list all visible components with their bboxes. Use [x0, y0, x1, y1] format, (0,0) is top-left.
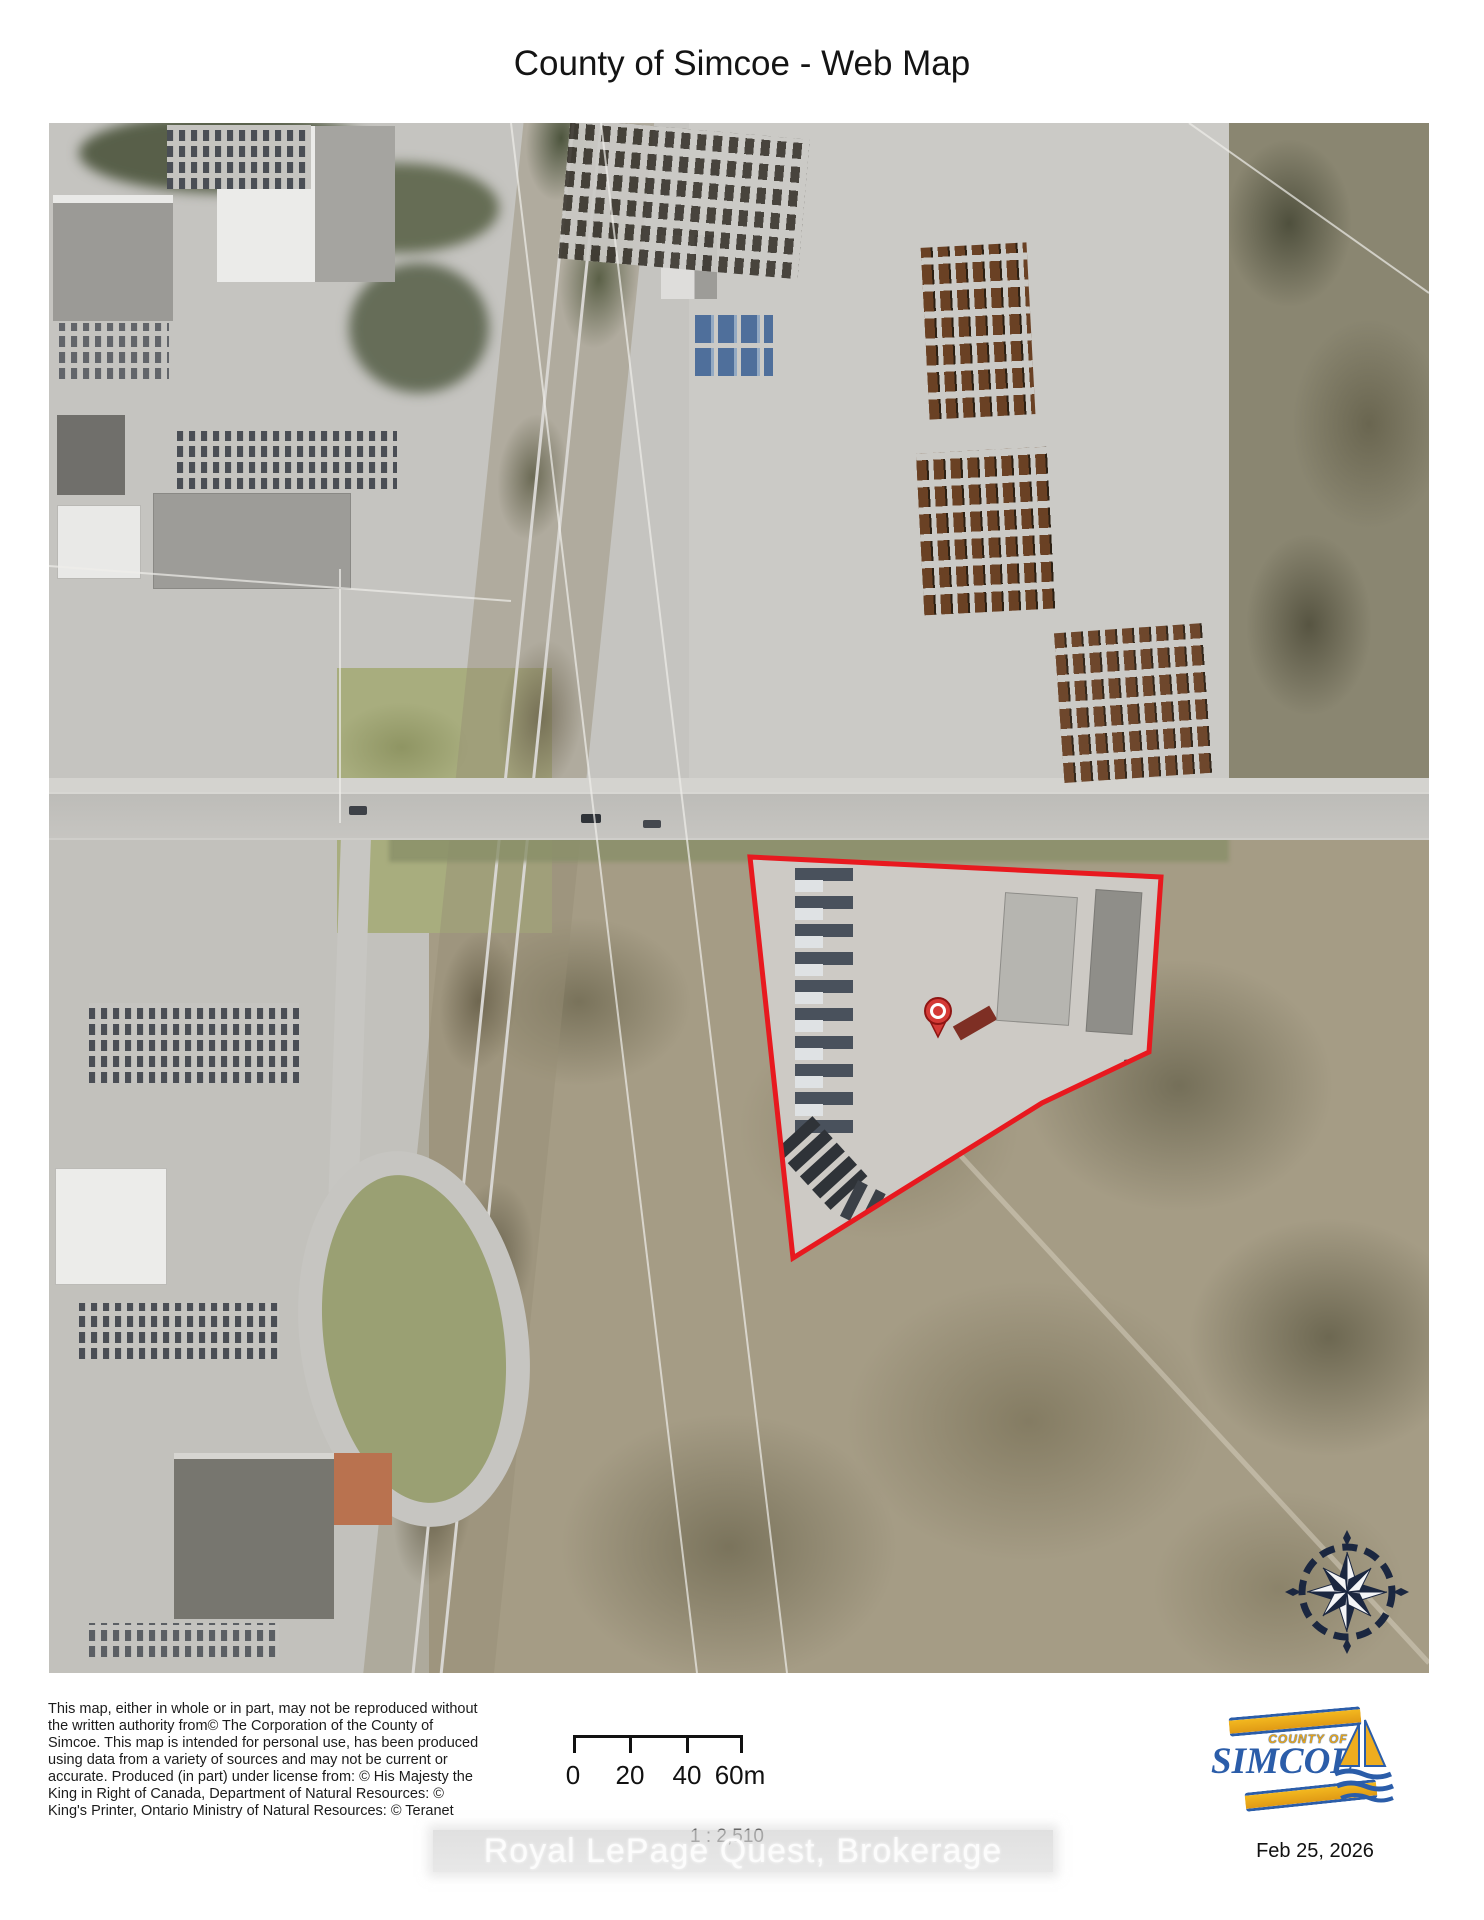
logo-sailboat-icon	[1333, 1716, 1395, 1804]
disclaimer-text: This map, either in whole or in part, ma…	[48, 1701, 498, 1820]
scale-bar	[573, 1735, 743, 1756]
scale-tick	[573, 1738, 576, 1753]
page-title: County of Simcoe - Web Map	[0, 44, 1484, 84]
building	[174, 1453, 334, 1619]
car-on-road	[581, 814, 601, 823]
parking-cars	[167, 125, 311, 189]
scale-tick	[629, 1738, 632, 1753]
trailer-rows	[916, 447, 1056, 616]
trailer-rows	[1054, 623, 1214, 783]
disclaimer-line: the written authority from© The Corporat…	[48, 1718, 498, 1735]
parking-cars	[79, 1303, 279, 1359]
parking-cars	[89, 1003, 299, 1083]
aerial-bottomright-scrub	[429, 834, 1429, 1673]
scale-label-40: 40	[657, 1760, 717, 1791]
disclaimer-line: accurate. Produced (in part) under licen…	[48, 1769, 498, 1786]
building	[153, 493, 351, 589]
map-date: Feb 25, 2026	[1230, 1840, 1400, 1863]
building	[57, 415, 125, 495]
car-on-road	[643, 820, 661, 828]
scale-tick	[740, 1738, 743, 1753]
building	[55, 1168, 167, 1285]
main-road	[49, 792, 1429, 840]
parking-cars	[89, 1623, 279, 1657]
aerial-right-scrub	[1229, 123, 1429, 792]
building	[334, 1453, 392, 1525]
disclaimer-line: King in Right of Canada, Department of N…	[48, 1786, 498, 1803]
brokerage-watermark: Royal LePage Quest, Brokerage	[433, 1830, 1053, 1872]
dark-trucks	[558, 123, 809, 279]
parking-cars	[59, 323, 169, 379]
disclaimer-line: using data from a variety of sources and…	[48, 1752, 498, 1769]
parking-cars	[177, 431, 397, 489]
trailer-rows	[921, 242, 1036, 419]
building	[53, 195, 173, 321]
blue-containers	[695, 310, 773, 376]
disclaimer-line: This map, either in whole or in part, ma…	[48, 1701, 498, 1718]
disclaimer-line: King's Printer, Ontario Ministry of Natu…	[48, 1803, 498, 1820]
scale-label-60m: 60m	[710, 1760, 770, 1791]
aerial-map	[49, 123, 1429, 1673]
scale-label-20: 20	[600, 1760, 660, 1791]
car-on-road	[349, 806, 367, 815]
tree-band	[349, 263, 489, 393]
disclaimer-line: Simcoe. This map is intended for persona…	[48, 1735, 498, 1752]
building	[57, 505, 141, 579]
scale-label-0: 0	[543, 1760, 603, 1791]
simcoe-logo: COUNTY OF SIMCOE	[1205, 1708, 1405, 1812]
scale-tick	[686, 1738, 689, 1753]
